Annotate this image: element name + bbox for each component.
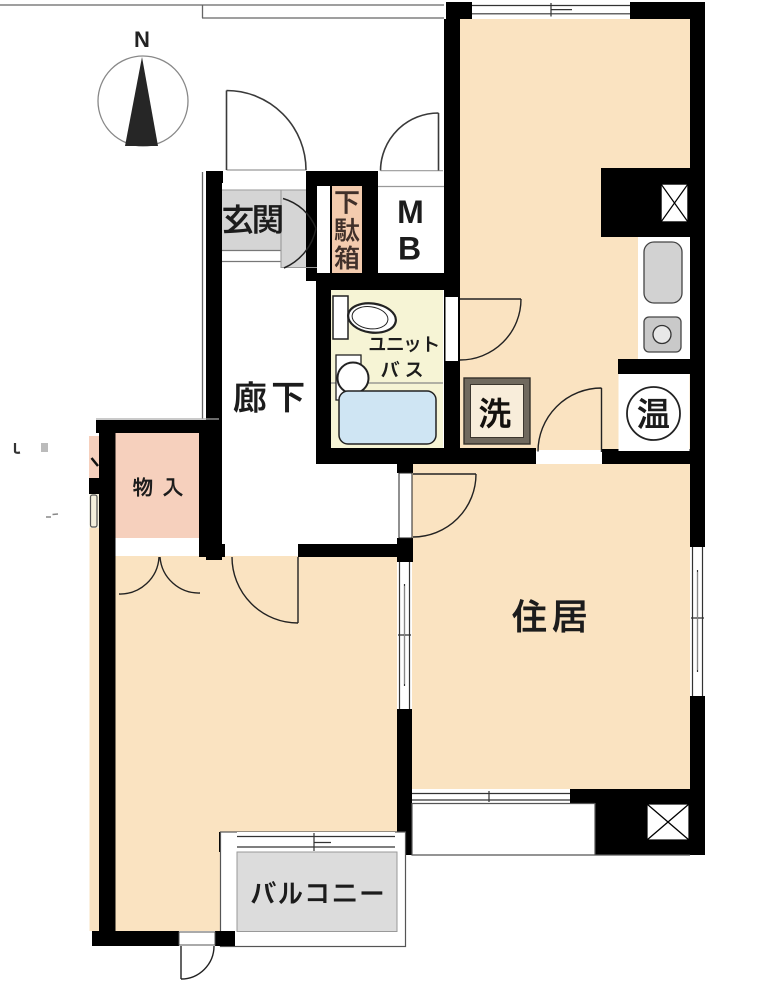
- svg-text:M: M: [397, 194, 424, 230]
- svg-text:N: N: [134, 27, 150, 52]
- svg-text:B: B: [398, 231, 421, 267]
